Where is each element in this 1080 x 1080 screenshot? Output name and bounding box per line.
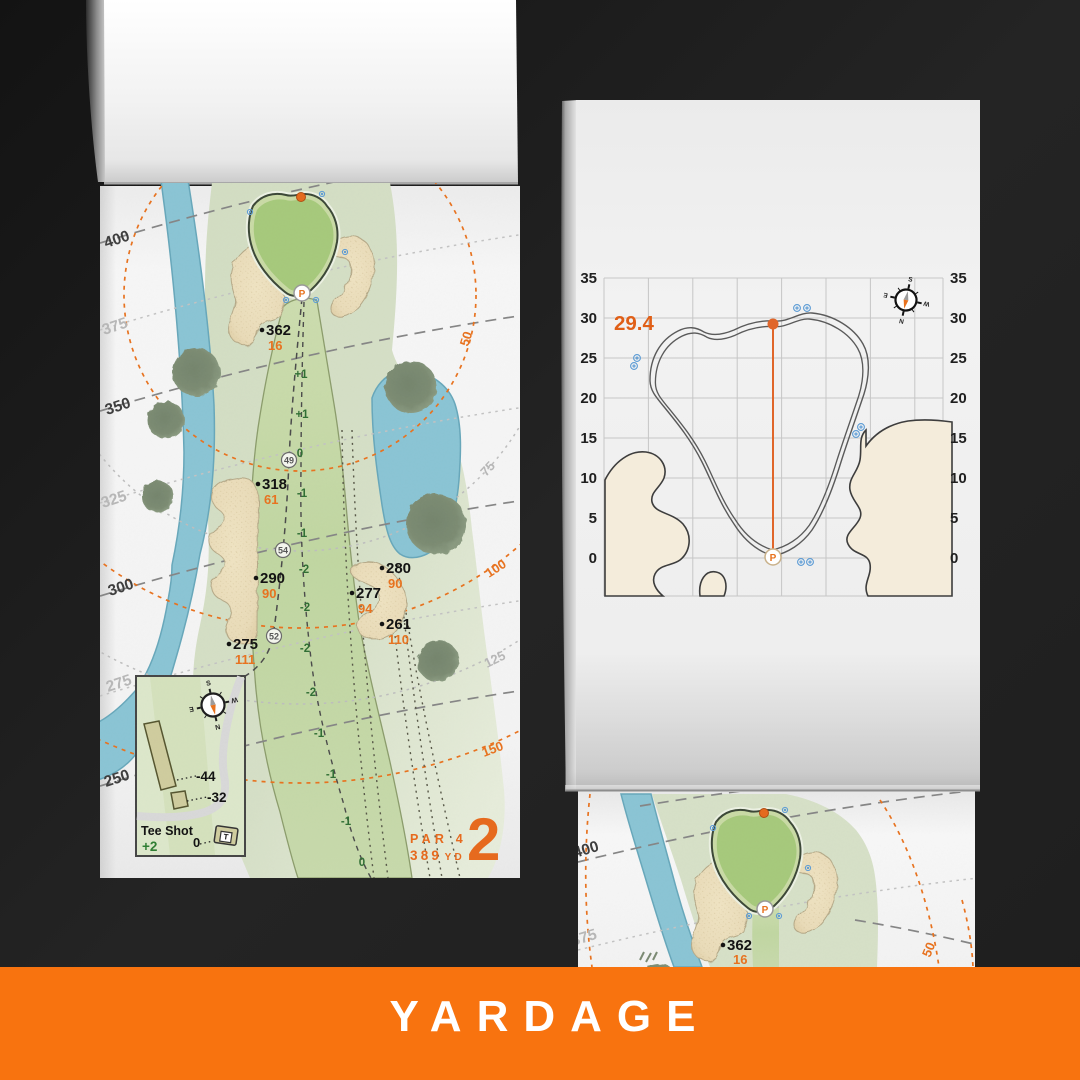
svg-text:20: 20: [950, 390, 967, 407]
svg-text:20: 20: [580, 390, 597, 407]
svg-text:25: 25: [580, 350, 597, 367]
svg-text:0: 0: [589, 550, 597, 567]
svg-text:2: 2: [467, 806, 500, 873]
svg-text:10: 10: [950, 470, 967, 487]
svg-text:35: 35: [580, 270, 597, 287]
svg-text:10: 10: [580, 470, 597, 487]
svg-text:15: 15: [580, 430, 597, 447]
svg-text:PAR 4: PAR 4: [410, 832, 467, 846]
svg-text:30: 30: [950, 310, 967, 327]
svg-text:30: 30: [580, 310, 597, 327]
svg-text:P: P: [770, 553, 777, 564]
svg-text:5: 5: [950, 510, 958, 527]
svg-text:0: 0: [950, 550, 958, 567]
svg-text:15: 15: [950, 430, 967, 447]
svg-text:25: 25: [950, 350, 967, 367]
svg-text:35: 35: [950, 270, 967, 287]
svg-text:29.4: 29.4: [614, 312, 654, 335]
svg-text:5: 5: [589, 510, 597, 527]
svg-text:YARDAGE: YARDAGE: [390, 992, 711, 1041]
